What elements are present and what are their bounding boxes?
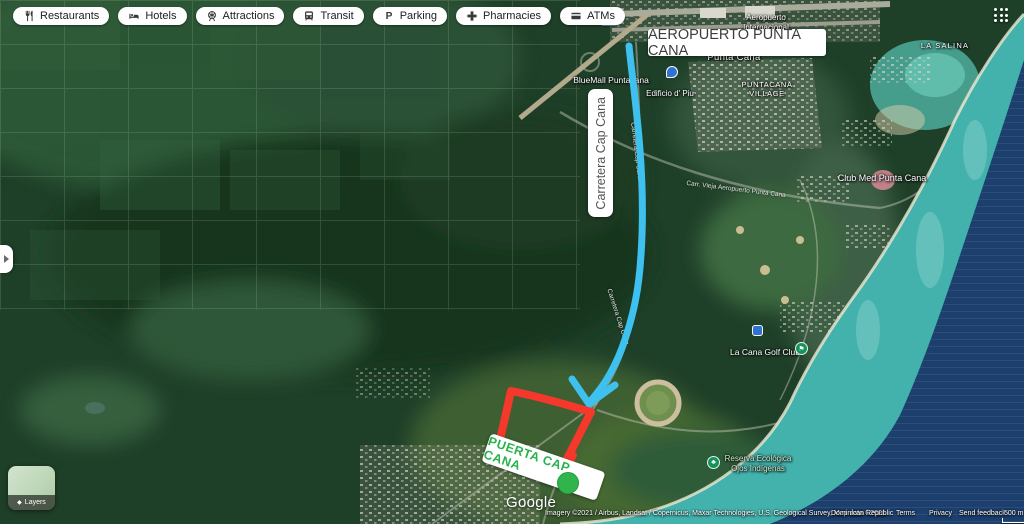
attractions-icon bbox=[206, 10, 218, 22]
annotation-carretera-label: Carretera Cap Cana bbox=[588, 89, 613, 217]
region-label: Dominican Republic bbox=[831, 510, 893, 517]
restaurants-button[interactable]: Restaurants bbox=[13, 7, 109, 25]
hotels-button[interactable]: Hotels bbox=[118, 7, 186, 25]
restaurants-label: Restaurants bbox=[40, 10, 99, 22]
atms-icon bbox=[570, 10, 582, 22]
pharmacies-icon bbox=[466, 10, 478, 22]
svg-text:P: P bbox=[385, 11, 392, 22]
chevron-right-icon bbox=[4, 255, 9, 263]
parking-icon: P bbox=[383, 10, 395, 22]
google-logo: Google bbox=[506, 494, 556, 511]
attractions-label: Attractions bbox=[223, 10, 275, 22]
pharmacies-button[interactable]: Pharmacies bbox=[456, 7, 551, 25]
atms-button[interactable]: ATMs bbox=[560, 7, 625, 25]
parking-label: Parking bbox=[400, 10, 437, 22]
category-toolbar: Restaurants Hotels Attractions Transit bbox=[13, 7, 625, 25]
side-panel-toggle[interactable] bbox=[0, 245, 13, 273]
layers-icon: ◆ bbox=[17, 500, 22, 506]
google-maps-satellite-view[interactable]: Aeropuerto Internacional Punta Cana Blue… bbox=[0, 0, 1024, 524]
scale-bar bbox=[1002, 518, 1024, 523]
send-feedback-link[interactable]: Send feedback bbox=[959, 510, 1006, 517]
restaurants-icon bbox=[23, 10, 35, 22]
apps-grid-icon[interactable] bbox=[994, 8, 1008, 22]
transit-label: Transit bbox=[320, 10, 353, 22]
parking-button[interactable]: P Parking bbox=[373, 7, 447, 25]
transit-button[interactable]: Transit bbox=[293, 7, 363, 25]
annotation-carretera-text: Carretera Cap Cana bbox=[594, 97, 608, 210]
atms-label: ATMs bbox=[587, 10, 615, 22]
hotels-label: Hotels bbox=[145, 10, 176, 22]
transit-icon bbox=[303, 10, 315, 22]
annotation-airport-label: AEROPUERTO PUNTA CANA bbox=[648, 29, 826, 56]
terms-link[interactable]: Terms bbox=[896, 510, 915, 517]
puerta-location-dot bbox=[557, 472, 579, 494]
route-arrowhead bbox=[572, 379, 589, 404]
pharmacies-label: Pharmacies bbox=[483, 10, 541, 22]
layers-label: Layers bbox=[25, 499, 46, 506]
attractions-button[interactable]: Attractions bbox=[196, 7, 285, 25]
hotels-icon bbox=[128, 10, 140, 22]
layers-control[interactable]: ◆ Layers bbox=[8, 466, 55, 510]
scale-label: 500 m bbox=[1004, 510, 1023, 517]
privacy-link[interactable]: Privacy bbox=[929, 510, 952, 517]
